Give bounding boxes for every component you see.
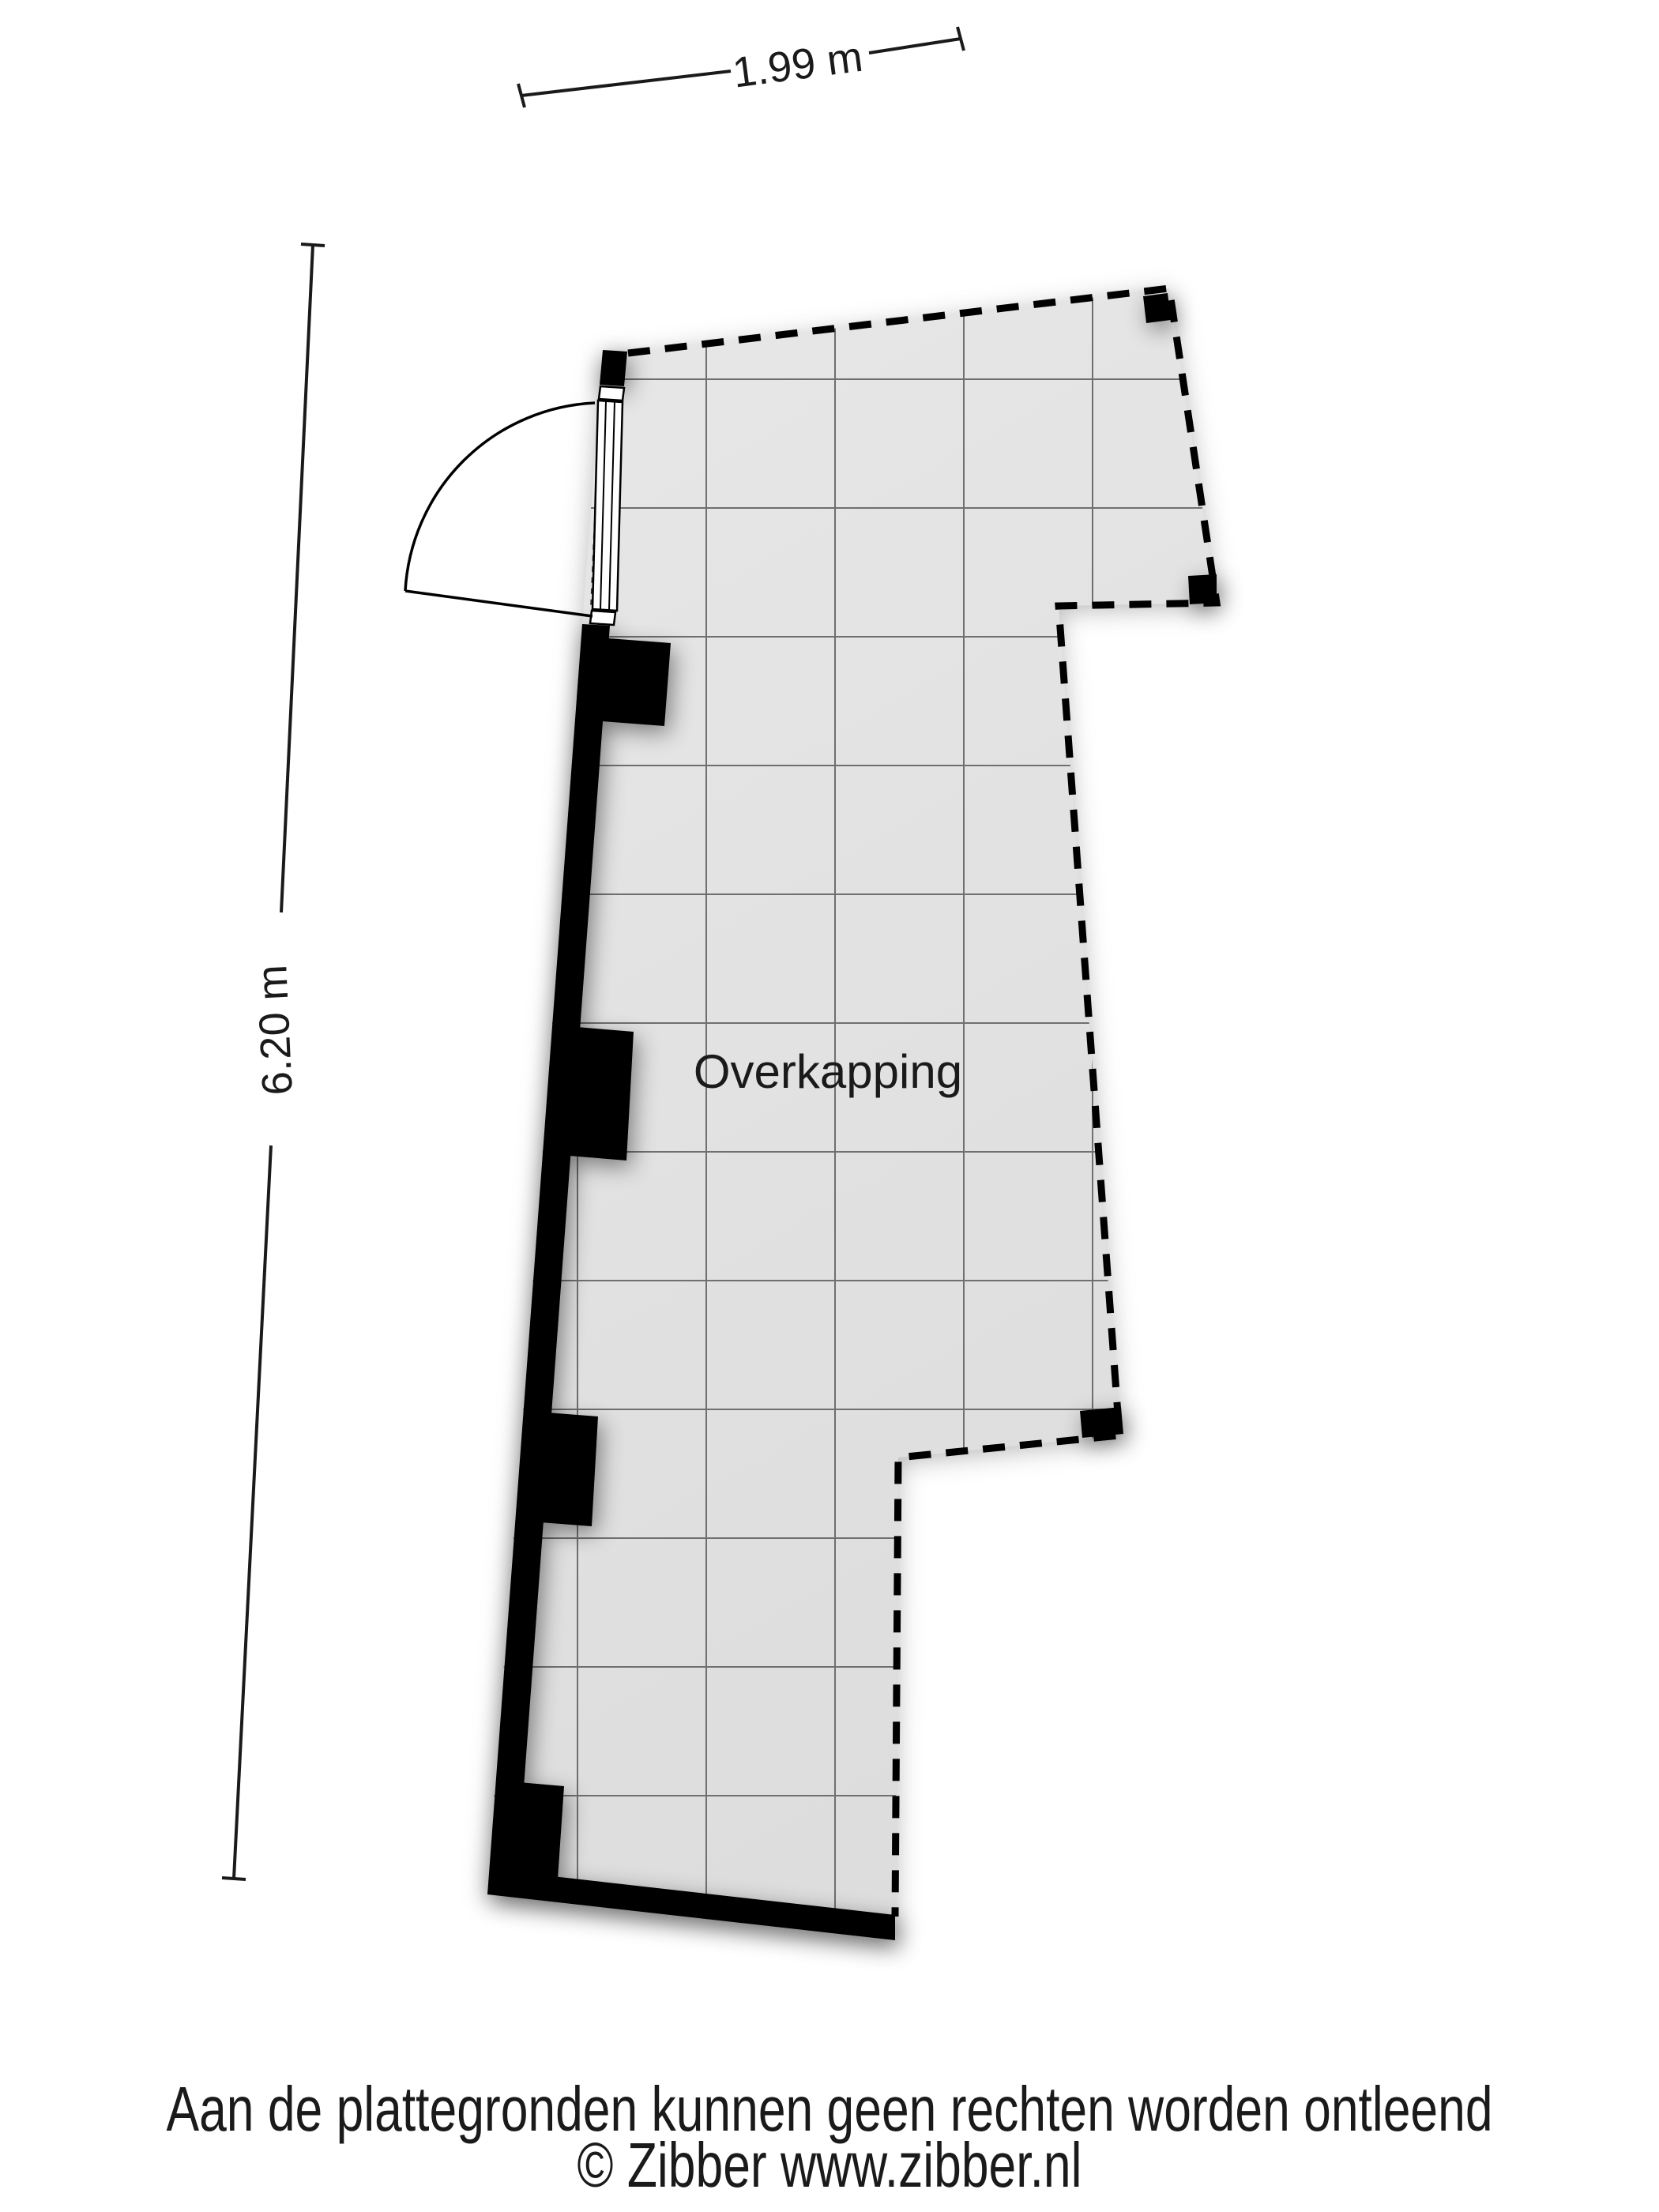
floorplan-page: Overkapping 1.99 m 6.20 m Aan de platteg… [0, 0, 1659, 2212]
wall-pier-2 [570, 1027, 634, 1161]
dimension-left-cap-top [301, 244, 325, 246]
door-leaf-glazing [592, 401, 623, 611]
door-jamb-bottom [590, 611, 615, 625]
wall-pier-3 [540, 1413, 598, 1526]
room-label: Overkapping [694, 1045, 962, 1098]
wall-pier-1 [602, 638, 671, 726]
dimension-left-cap-bottom [222, 1878, 246, 1879]
door-leaf-open-line [405, 591, 592, 616]
wall-pier-4 [513, 1782, 564, 1879]
dimension-left-label: 6.20 m [248, 964, 302, 1097]
footer-copyright: © Zibber www.zibber.nl [577, 2131, 1082, 2201]
door-jamb-top [599, 386, 624, 401]
corner-post-lower-right [1080, 1407, 1123, 1438]
dimension-top-label: 1.99 m [730, 33, 866, 97]
wall-stub-top [600, 350, 627, 386]
corner-post-top-right [1143, 293, 1171, 323]
corner-post-right-step [1188, 574, 1217, 604]
floorplan-canvas: Overkapping 1.99 m 6.20 m Aan de platteg… [0, 0, 1659, 2212]
door-swing-arc [405, 403, 595, 591]
